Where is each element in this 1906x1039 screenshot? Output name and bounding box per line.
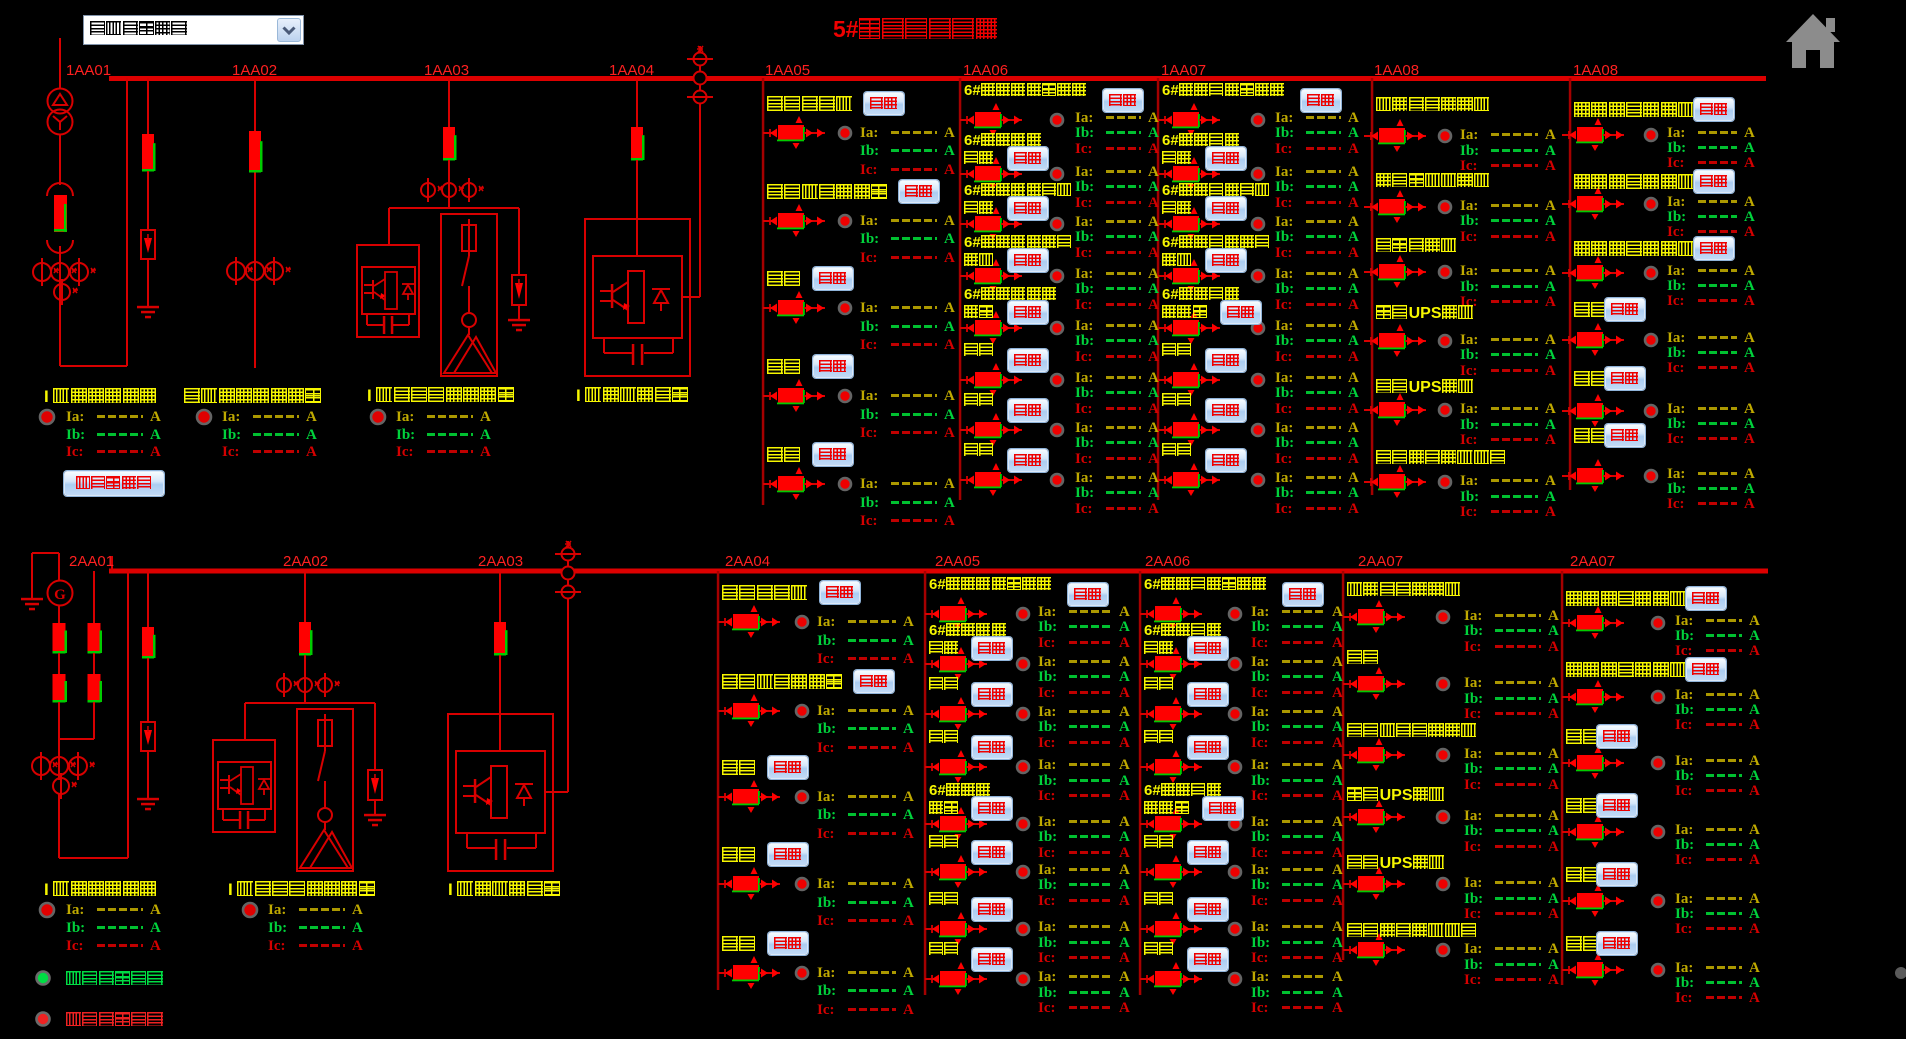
svg-text:G: G [54, 587, 66, 603]
